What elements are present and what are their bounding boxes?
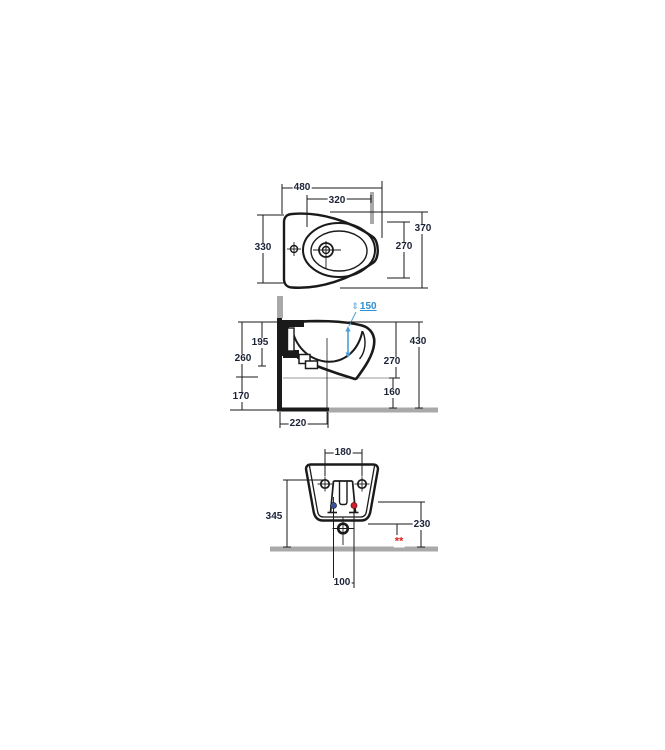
dim-label-side-220: 220 — [289, 419, 308, 429]
dim-label-front-345: 345 — [265, 512, 284, 522]
front-view-outline — [306, 465, 378, 521]
dim-label-inlets-100: 100 — [333, 578, 352, 588]
dim-label-tap-320: 320 — [328, 196, 347, 206]
water-depth-arrow — [345, 312, 356, 358]
dim-label-side-260: 260 — [234, 354, 253, 364]
dim-label-width-370: 370 — [414, 224, 433, 234]
dim-label-back-330: 330 — [254, 243, 273, 253]
dim-label-basin-270: 270 — [395, 242, 414, 252]
footnote-marker: ** — [394, 537, 405, 548]
cold-water-inlet — [331, 503, 337, 509]
side-view-wall — [277, 318, 282, 410]
side-view — [230, 296, 438, 428]
dim-label-height-430: 430 — [409, 337, 428, 347]
dim-label-side-170: 170 — [232, 392, 251, 402]
hot-water-inlet — [351, 503, 357, 509]
front-view-dimension-lines — [283, 449, 425, 588]
small-hole — [287, 242, 301, 256]
side-view-wall-upper — [277, 296, 283, 318]
side-view-floor-black — [277, 408, 329, 412]
dim-label-water-150: ⇕150 — [350, 302, 377, 312]
dim-label-side-160: 160 — [383, 388, 402, 398]
dim-label-side-270: 270 — [383, 357, 402, 367]
updown-arrow-icon: ⇕ — [351, 302, 359, 312]
dim-label-side-195: 195 — [251, 338, 270, 348]
dim-label-bolts-180: 180 — [334, 448, 353, 458]
bidet-technical-drawing-page: 480 320 330 370 270 ⇕150 195 260 170 430… — [0, 0, 665, 750]
drawing-canvas — [0, 0, 665, 750]
front-view-inner-line — [310, 466, 375, 517]
fixing-holes — [318, 477, 370, 492]
dim-label-inlet-230: 230 — [413, 520, 432, 530]
dim-label-depth-480: 480 — [293, 183, 312, 193]
mounting-bracket — [282, 320, 318, 369]
